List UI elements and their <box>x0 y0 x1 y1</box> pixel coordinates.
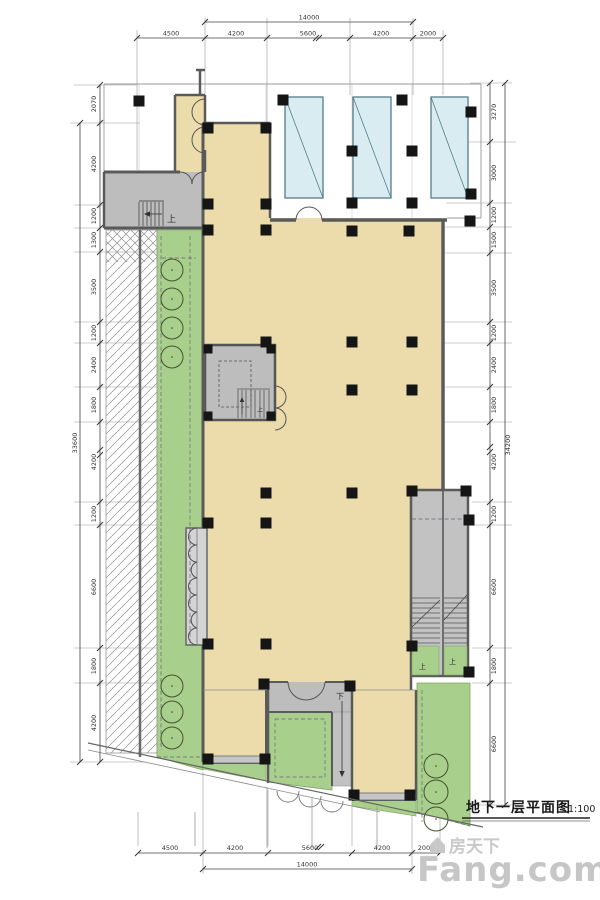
green-right-strip <box>417 683 470 826</box>
dim-left-seg: 2070 <box>90 96 98 113</box>
lower-hall-floor <box>203 490 412 690</box>
dim-right-seg: 1500 <box>490 232 498 249</box>
dim-bottom-seg: 4200 <box>227 844 244 852</box>
dim-left-seg: 1300 <box>90 232 98 249</box>
wing-up-label-2: 上 <box>449 657 456 666</box>
boundary-scallop-arcs <box>277 791 343 812</box>
dim-right-seg: 6600 <box>490 736 498 753</box>
dim-right-overall: 34200 <box>504 435 512 456</box>
dim-left-seg: 1200 <box>90 325 98 342</box>
dim-right-seg: 3270 <box>490 104 498 121</box>
watermark-brand-en: Fang.com <box>417 850 600 890</box>
dim-top-seg: 4200 <box>228 30 245 38</box>
drawing-title: 地下一层平面图 <box>466 799 571 816</box>
dim-top-seg: 4500 <box>163 30 180 38</box>
dim-right-seg: 1200 <box>490 506 498 523</box>
drawing-scale: 1:100 <box>568 804 595 815</box>
dim-right-seg: 3500 <box>490 280 498 297</box>
dim-left-seg: 1200 <box>90 208 98 225</box>
wing-up-label-1: 上 <box>419 662 426 671</box>
dim-right-seg: 2400 <box>490 357 498 374</box>
title-block: 地下一层平面图 1:100 <box>462 799 595 821</box>
skylight-group <box>285 97 468 198</box>
stair-up-label: 上 <box>167 214 176 225</box>
top-corridor <box>104 172 203 228</box>
dim-left-seg: 4200 <box>90 454 98 471</box>
entry-vestibule-floor <box>175 95 205 172</box>
dim-top-seg: 5600 <box>300 30 317 38</box>
dim-right-seg: 6600 <box>490 579 498 596</box>
dim-left-seg: 1800 <box>90 397 98 414</box>
floor-plan-drawing: 14000 4500 4200 5600 4200 2000 14000 450… <box>0 0 600 900</box>
dim-bottom-seg: 4200 <box>374 844 391 852</box>
dim-left-seg: 2400 <box>90 357 98 374</box>
green-courtyard <box>268 712 332 790</box>
dim-left-overall: 33600 <box>71 433 79 454</box>
ramp-hatch-band <box>106 230 157 753</box>
dim-left-seg: 1200 <box>90 506 98 523</box>
dim-bottom-seg: 5600 <box>302 844 319 852</box>
dim-top-seg: 4200 <box>373 30 390 38</box>
dim-left-seg: 6600 <box>90 579 98 596</box>
ramp-crosshatch-top <box>106 230 157 262</box>
dim-left-seg: 4200 <box>90 156 98 173</box>
stair-core <box>205 345 275 420</box>
bottom-right-room-floor <box>352 690 416 800</box>
dim-right-seg: 1200 <box>490 207 498 224</box>
dim-left-seg: 1800 <box>90 658 98 675</box>
dim-bottom-overall: 14000 <box>297 861 318 869</box>
ramp-down-label: 下 <box>336 692 344 701</box>
dim-right-seg: 3000 <box>490 165 498 182</box>
dim-top-seg: 2000 <box>420 30 437 38</box>
dim-left-seg: 3500 <box>90 279 98 296</box>
dim-top-overall: 14000 <box>299 14 320 22</box>
dim-left-seg: 4200 <box>90 715 98 732</box>
dim-right-seg: 1800 <box>490 658 498 675</box>
dim-right-seg: 4200 <box>490 454 498 471</box>
core-up-label: 上 <box>257 406 263 414</box>
bottom-left-room-floor <box>203 690 266 763</box>
dim-bottom-seg: 4500 <box>162 844 179 852</box>
dim-right-seg: 1800 <box>490 397 498 414</box>
watermark: 房天下 Fang.com <box>417 836 600 890</box>
green-strip-left <box>157 230 203 770</box>
floor-plan-page: 14000 4500 4200 5600 4200 2000 14000 450… <box>0 0 600 900</box>
dim-right-seg: 1200 <box>490 325 498 342</box>
